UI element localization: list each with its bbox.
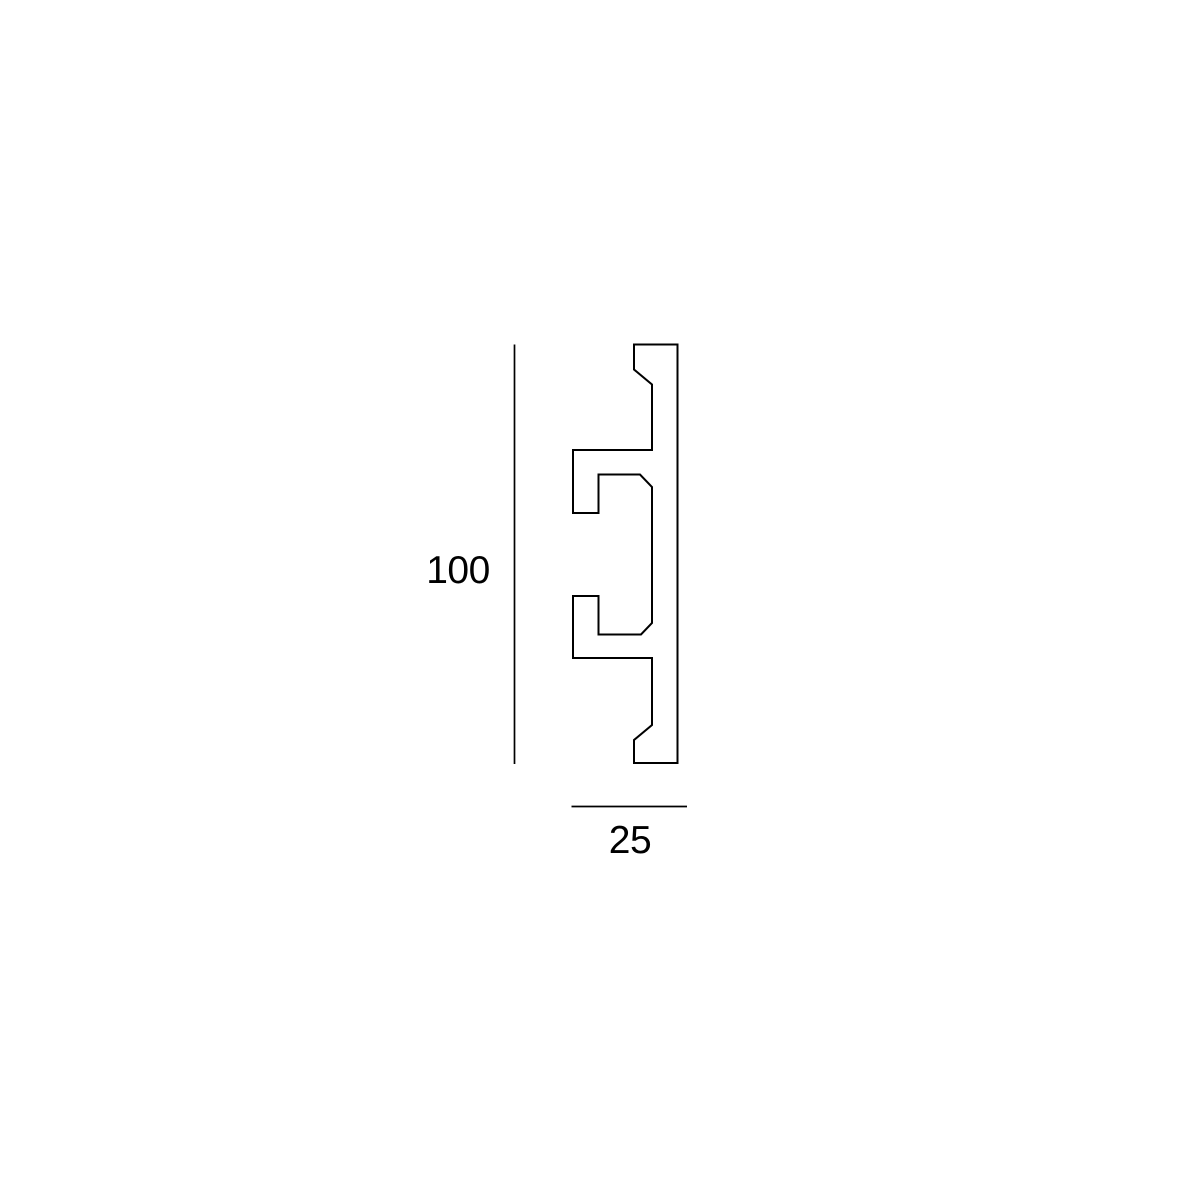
width-dimension-label: 25 (609, 819, 651, 863)
height-dimension-label: 100 (426, 549, 490, 593)
drawing-canvas: 100 25 (0, 0, 1181, 1181)
profile-outline (573, 345, 678, 764)
profile-drawing (0, 0, 1181, 1181)
